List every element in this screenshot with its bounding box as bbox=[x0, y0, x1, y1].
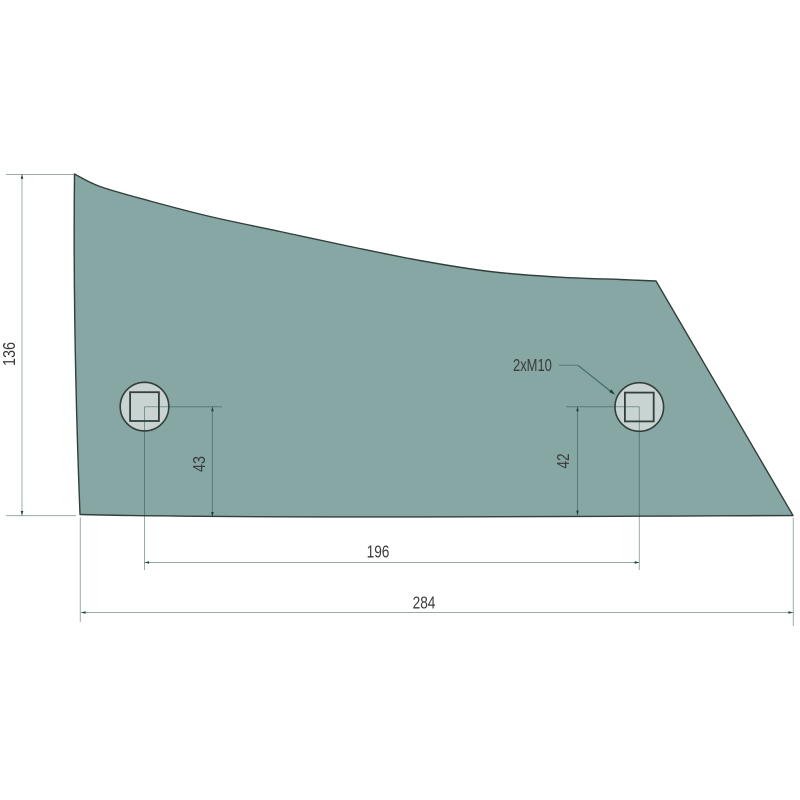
svg-text:43: 43 bbox=[190, 456, 210, 472]
svg-text:196: 196 bbox=[367, 543, 390, 562]
svg-text:2xM10: 2xM10 bbox=[513, 356, 552, 376]
svg-text:284: 284 bbox=[413, 594, 436, 613]
svg-text:42: 42 bbox=[554, 453, 573, 468]
svg-text:136: 136 bbox=[0, 342, 19, 366]
